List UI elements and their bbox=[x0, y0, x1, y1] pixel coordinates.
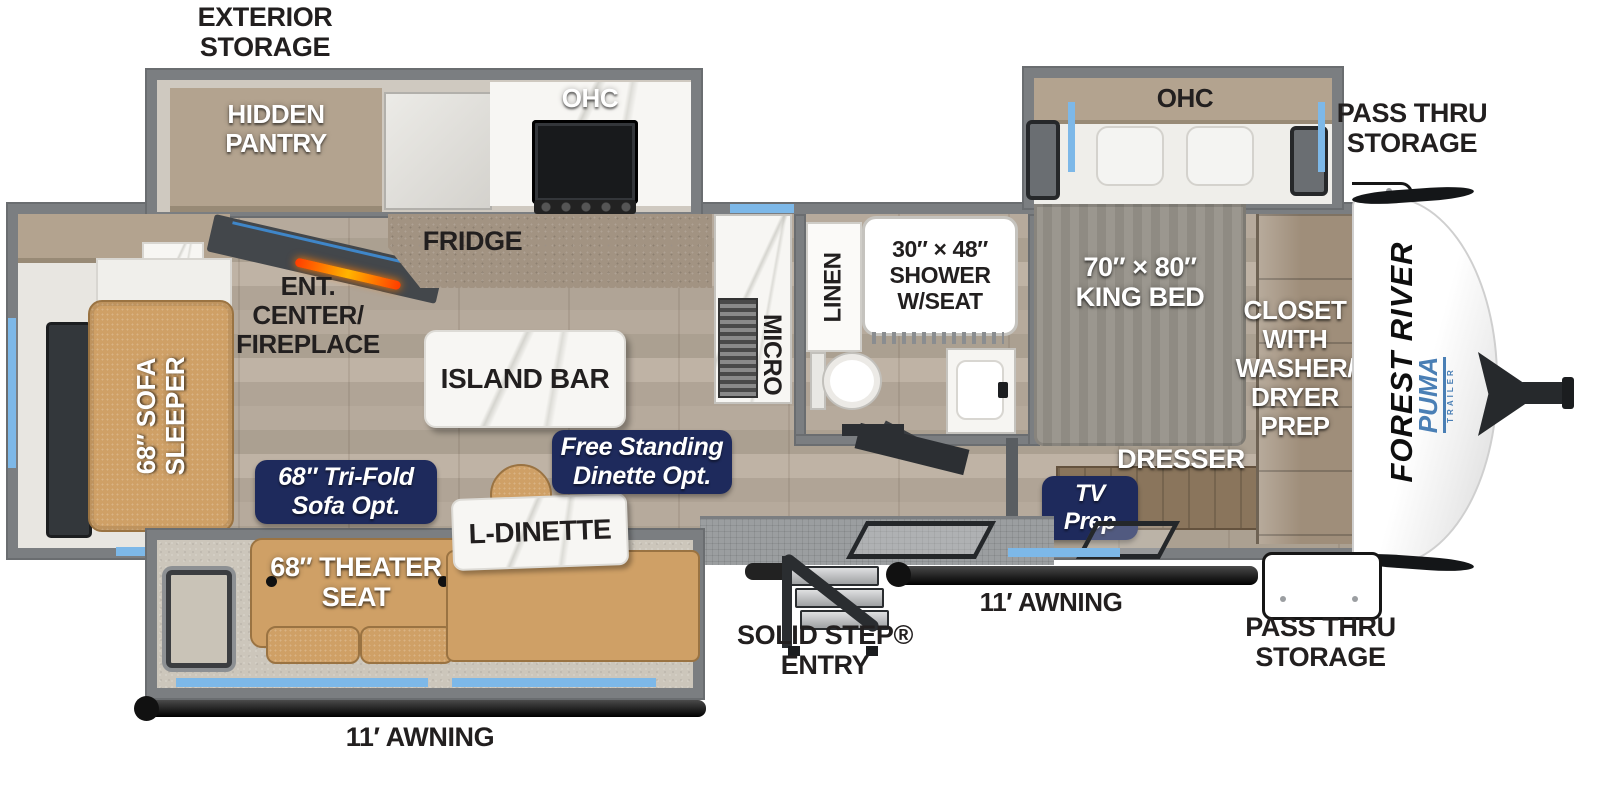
sofa-sleeper-label: 68″ SOFA SLEEPER bbox=[132, 345, 190, 487]
awning-left-label: 11′ AWNING bbox=[330, 722, 510, 752]
tri-fold-line1: 68″ Tri-Fold bbox=[255, 463, 437, 492]
rear-wall-window-accent bbox=[8, 318, 16, 468]
solid-step-line2: ENTRY bbox=[735, 650, 915, 680]
hall-step-upper bbox=[842, 424, 904, 436]
bed-pillow-right bbox=[1186, 126, 1254, 186]
bedroom-window-accent-left bbox=[1068, 102, 1075, 172]
solid-step-label: SOLID STEP® ENTRY bbox=[735, 620, 915, 680]
front-wall-window-accent-left bbox=[1008, 548, 1120, 557]
bath-faucet bbox=[998, 382, 1008, 398]
exterior-storage-label: EXTERIOR STORAGE bbox=[150, 2, 380, 62]
awning-left-end-cap bbox=[134, 696, 159, 721]
king-bed-line2: KING BED bbox=[1034, 282, 1246, 312]
ent-center-line2: CENTER/ bbox=[228, 301, 388, 330]
closet-line1: CLOSET bbox=[1228, 296, 1362, 325]
stove-knobs bbox=[534, 200, 636, 214]
free-standing-line1: Free Standing bbox=[552, 433, 732, 462]
awning-right-label: 11′ AWNING bbox=[966, 588, 1136, 617]
theater-slide-window bbox=[166, 570, 232, 668]
ent-center-label: ENT. CENTER/ FIREPLACE bbox=[228, 272, 388, 359]
closet-line3: WASHER/ bbox=[1228, 354, 1362, 383]
shower: 30″ × 48″ SHOWER W/SEAT bbox=[862, 216, 1018, 336]
toilet-bowl bbox=[822, 352, 882, 410]
bed-pillow-left bbox=[1096, 126, 1164, 186]
fridge-box bbox=[384, 92, 492, 210]
puma-logo-text: PUMA bbox=[1415, 357, 1445, 434]
exterior-storage-line1: EXTERIOR bbox=[150, 2, 380, 32]
solid-step-line1: SOLID STEP® bbox=[735, 620, 915, 650]
rear-window bbox=[46, 322, 92, 538]
tri-fold-line2: Sofa Opt. bbox=[255, 492, 437, 521]
shower-drain-grate bbox=[872, 332, 1004, 344]
fridge-label: FRIDGE bbox=[415, 226, 530, 256]
theater-seat-recliner-left bbox=[266, 626, 360, 664]
puma-logo-subtext: TRAILER bbox=[1446, 357, 1455, 434]
pass-thru-bottom-screw-right bbox=[1352, 596, 1358, 602]
tv-prep-line1: TV bbox=[1042, 480, 1138, 508]
kitchen-ohc-label: OHC bbox=[545, 84, 635, 113]
bedroom-window-left bbox=[1026, 120, 1060, 200]
closet-line2: WITH bbox=[1228, 325, 1362, 354]
linen-cabinet: LINEN bbox=[806, 222, 862, 352]
theater-slide-window-accent-right bbox=[452, 678, 656, 687]
theater-seat-recliner-right bbox=[360, 626, 454, 664]
shower-line3: W/SEAT bbox=[865, 289, 1015, 315]
island-bar: ISLAND BAR bbox=[424, 330, 626, 428]
pass-thru-top-line1: PASS THRU bbox=[1332, 98, 1492, 128]
pass-thru-top-label: PASS THRU STORAGE bbox=[1332, 98, 1492, 158]
puma-logo-wrap: PUMA TRAILER bbox=[1412, 340, 1458, 450]
micro-label: MICRO bbox=[752, 300, 786, 410]
shower-line1: 30″ × 48″ bbox=[865, 237, 1015, 263]
bedroom-window-accent-right bbox=[1318, 102, 1325, 172]
stove bbox=[532, 120, 638, 204]
pass-thru-bottom-line1: PASS THRU bbox=[1238, 612, 1403, 642]
shower-label: 30″ × 48″ SHOWER W/SEAT bbox=[865, 237, 1015, 314]
bath-left-wall bbox=[794, 214, 806, 446]
pass-thru-bottom-line2: STORAGE bbox=[1238, 642, 1403, 672]
sofa-sleeper: 68″ SOFA SLEEPER bbox=[88, 300, 234, 532]
linen-label: LINEN bbox=[821, 252, 848, 322]
island-bar-label: ISLAND BAR bbox=[441, 363, 610, 394]
puma-logo: PUMA TRAILER bbox=[1415, 357, 1454, 434]
theater-slide-window-accent-left bbox=[176, 678, 428, 687]
theater-seat-line1: 68″ THEATER bbox=[252, 552, 460, 582]
pass-thru-bottom-door bbox=[1262, 552, 1382, 620]
free-standing-line2: Dinette Opt. bbox=[552, 462, 732, 491]
tri-fold-sofa-badge: 68″ Tri-Fold Sofa Opt. bbox=[255, 460, 437, 524]
theater-seat-line2: SEAT bbox=[252, 582, 460, 612]
awning-right-end-cap bbox=[886, 562, 911, 587]
pass-thru-top-line2: STORAGE bbox=[1332, 128, 1492, 158]
closet-line5: PREP bbox=[1228, 412, 1362, 441]
sofa-sleeper-line2: SLEEPER bbox=[161, 345, 190, 487]
l-dinette-table: L-DINETTE bbox=[451, 493, 629, 571]
free-standing-dinette-badge: Free Standing Dinette Opt. bbox=[552, 430, 732, 494]
king-bed-line1: 70″ × 80″ bbox=[1034, 252, 1246, 282]
dresser-label: DRESSER bbox=[1106, 444, 1256, 474]
closet-line4: DRYER bbox=[1228, 383, 1362, 412]
pass-thru-bottom-label: PASS THRU STORAGE bbox=[1238, 612, 1403, 672]
hidden-pantry-line1: HIDDEN bbox=[180, 100, 372, 129]
closet-label: CLOSET WITH WASHER/ DRYER PREP bbox=[1228, 296, 1362, 442]
entry-floor-frame-left bbox=[846, 521, 996, 559]
awning-right-bar bbox=[896, 566, 1258, 585]
ent-center-line1: ENT. bbox=[228, 272, 388, 301]
bath-sink bbox=[956, 360, 1004, 420]
exterior-storage-line2: STORAGE bbox=[150, 32, 380, 62]
king-bed bbox=[1034, 204, 1246, 446]
l-dinette-label: L-DINETTE bbox=[468, 514, 612, 550]
king-bed-label: 70″ × 80″ KING BED bbox=[1034, 252, 1246, 312]
sofa-sleeper-line1: 68″ SOFA bbox=[132, 345, 161, 487]
awning-left-bar bbox=[146, 700, 706, 717]
ent-center-line3: FIREPLACE bbox=[228, 330, 388, 359]
floor-plan: HIDDEN PANTRY OHC EXTERIOR STORAGE OHC P… bbox=[0, 0, 1600, 805]
pass-thru-bottom-screw-left bbox=[1280, 596, 1286, 602]
hidden-pantry-line2: PANTRY bbox=[180, 129, 372, 158]
bedroom-ohc-label: OHC bbox=[1140, 84, 1230, 113]
hidden-pantry-label: HIDDEN PANTRY bbox=[180, 100, 372, 158]
shower-line2: SHOWER bbox=[865, 263, 1015, 289]
kitchen-top-window-accent bbox=[730, 204, 794, 213]
theater-seat-label: 68″ THEATER SEAT bbox=[252, 552, 460, 612]
hitch-coupler bbox=[1562, 377, 1574, 409]
